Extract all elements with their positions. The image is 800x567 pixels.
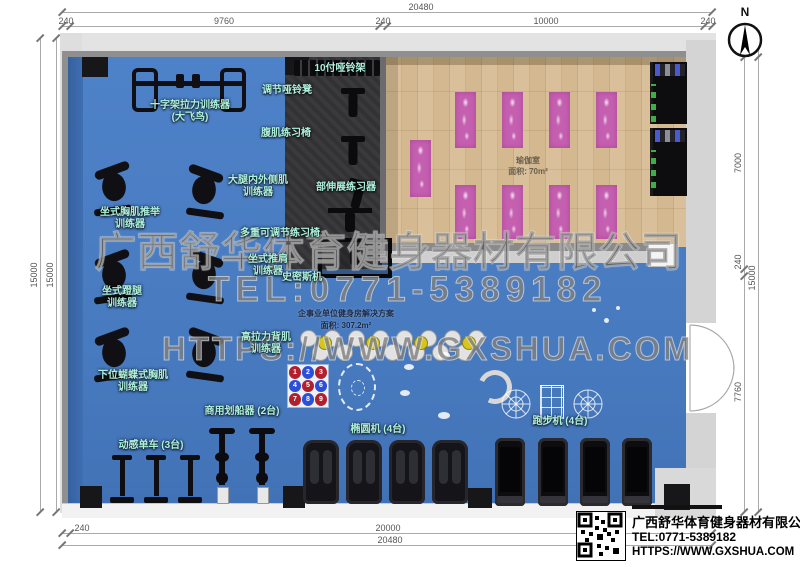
pillar bbox=[82, 57, 108, 77]
treadmill-icon bbox=[622, 438, 652, 506]
grid-cell: 6 bbox=[315, 380, 327, 393]
yoga-mat bbox=[455, 92, 476, 148]
elliptical-icon bbox=[389, 440, 425, 504]
bench-icon bbox=[338, 88, 368, 118]
dim-bottom-overall: 20480 bbox=[377, 535, 402, 545]
grid-cell: 7 bbox=[289, 393, 301, 406]
yoga-mat bbox=[455, 185, 476, 239]
info-card-url: HTTPS://WWW.GXSHUA.COM bbox=[632, 546, 794, 558]
yoga-room-door bbox=[648, 243, 678, 267]
yoga-mat bbox=[410, 140, 431, 197]
spin-bike-icon bbox=[110, 455, 134, 503]
treadmill-icon bbox=[538, 438, 568, 506]
hopscotch-number-grid: 1 2 3 4 5 6 7 8 9 bbox=[287, 364, 329, 408]
yoga-room-area: 面积: 70m² bbox=[508, 166, 548, 177]
label-pec-fly: 下位蝴蝶式胸肌 训练器 bbox=[98, 370, 168, 393]
solution-title: 企事业单位健身房解决方案 bbox=[298, 308, 394, 319]
dim-bottom-seg0: 240 bbox=[74, 523, 89, 533]
label-lat-pulldown: 高拉力背肌 训练器 bbox=[241, 332, 291, 355]
dim-line-right-overall bbox=[758, 50, 759, 512]
dim-top-seg1: 9760 bbox=[214, 16, 234, 26]
yoga-room-left-shadow bbox=[386, 57, 398, 247]
storage-rack bbox=[650, 62, 687, 124]
treadmill-icon bbox=[580, 438, 610, 506]
smith-machine-icon bbox=[318, 238, 392, 278]
compass-north-label: N bbox=[723, 5, 767, 19]
label-adjustable-bench: 多重可调节练习椅 bbox=[240, 228, 320, 240]
agility-ring-icon bbox=[338, 363, 376, 411]
spin-bike-icon bbox=[178, 455, 202, 503]
info-card-rule bbox=[632, 505, 722, 509]
treadmill-icon bbox=[495, 438, 525, 506]
qr-code-icon bbox=[576, 511, 626, 561]
dim-right-overall: 15000 bbox=[747, 265, 757, 290]
label-leg-press: 坐式蹬腿 训练器 bbox=[102, 286, 142, 309]
yoga-mat bbox=[549, 92, 570, 148]
yoga-room-top-shadow bbox=[386, 57, 686, 65]
dim-top-seg3: 10000 bbox=[533, 16, 558, 26]
yoga-mat bbox=[502, 92, 523, 148]
double-door-swing-icon bbox=[686, 323, 744, 413]
yoga-mat bbox=[502, 185, 523, 239]
north-compass: N bbox=[723, 5, 767, 63]
agility-ladder-icon bbox=[540, 385, 564, 419]
dim-left-outer: 15000 bbox=[29, 262, 39, 287]
rowing-machine-icon bbox=[208, 428, 236, 504]
dim-top-seg2: 240 bbox=[375, 16, 390, 26]
pillar bbox=[468, 488, 492, 508]
dim-right-seg0: 7000 bbox=[733, 153, 743, 173]
grid-cell: 1 bbox=[289, 366, 301, 379]
grid-cell: 4 bbox=[289, 380, 301, 393]
dim-line-left-outer bbox=[40, 38, 41, 512]
yoga-room-name: 瑜伽室 bbox=[516, 155, 540, 166]
storage-rack bbox=[650, 128, 687, 196]
strength-machine-icon bbox=[182, 328, 226, 380]
label-dumbbell-bench: 调节哑铃凳 bbox=[262, 85, 312, 97]
dim-line-right-segments bbox=[744, 50, 745, 512]
rope-web-icon bbox=[500, 388, 532, 420]
yoga-mat bbox=[596, 185, 617, 239]
dim-line-top-overall bbox=[62, 12, 712, 13]
floor-plan-canvas: 20480 240 9760 240 10000 240 240 20000 2… bbox=[0, 0, 800, 567]
grid-cell: 8 bbox=[302, 393, 314, 406]
label-treadmills: 跑步机 (4台) bbox=[533, 416, 588, 428]
gym-floor-shadow bbox=[68, 57, 83, 505]
bench-icon bbox=[338, 136, 368, 168]
label-smith-machine: 史密斯机 bbox=[282, 272, 322, 284]
dim-left-inner: 15000 bbox=[45, 262, 55, 287]
label-thigh-trainer: 大腿内外侧肌 训练器 bbox=[228, 175, 288, 198]
grid-cell: 5 bbox=[302, 380, 314, 393]
partition-wall-horizontal bbox=[380, 251, 648, 263]
label-rowers: 商用划船器 (2台) bbox=[205, 406, 280, 418]
dim-top-seg0: 240 bbox=[58, 16, 73, 26]
label-cross-cable: 十字架拉力训练器 (大飞鸟) bbox=[150, 100, 230, 123]
compass-icon bbox=[725, 19, 765, 61]
strength-machine-icon bbox=[182, 165, 226, 217]
elliptical-icon bbox=[432, 440, 468, 504]
rowing-machine-icon bbox=[248, 428, 276, 504]
dim-bottom-seg1: 20000 bbox=[375, 523, 400, 533]
yoga-mat bbox=[596, 92, 617, 148]
yoga-room-floor bbox=[386, 57, 686, 247]
company-info-card: 广西舒华体育健身器材有限公司 TEL:0771-5389182 HTTPS://… bbox=[576, 505, 798, 565]
yoga-mat bbox=[549, 185, 570, 239]
press-bench-icon bbox=[328, 206, 374, 232]
grid-cell: 3 bbox=[315, 366, 327, 379]
label-dumbbell-rack: 10付哑铃架 bbox=[314, 63, 365, 75]
label-ellipticals: 椭圆机 (4台) bbox=[351, 424, 406, 436]
dim-top-seg4: 240 bbox=[700, 16, 715, 26]
label-stretch-trainer: 部伸展练习器 bbox=[316, 182, 376, 194]
strength-machine-icon bbox=[182, 250, 226, 302]
grid-cell: 2 bbox=[302, 366, 314, 379]
solution-area: 面积: 307.2m² bbox=[321, 320, 372, 331]
partition-wall-vertical bbox=[380, 57, 386, 247]
label-spin-bikes: 动感单车 (3台) bbox=[119, 440, 184, 452]
info-card-tel: TEL:0771-5389182 bbox=[632, 530, 736, 544]
partition-wall-shadow bbox=[380, 243, 648, 251]
pillar bbox=[283, 486, 305, 508]
label-ab-chair: 腹肌练习椅 bbox=[261, 128, 311, 140]
dim-top-overall: 20480 bbox=[408, 2, 433, 12]
wall-right bbox=[686, 40, 716, 518]
spin-bike-icon bbox=[144, 455, 168, 503]
dim-right-seg1: 240 bbox=[733, 254, 743, 269]
pillar bbox=[80, 486, 102, 508]
dim-line-left-inner bbox=[56, 38, 57, 512]
elliptical-icon bbox=[303, 440, 339, 504]
grid-cell: 9 bbox=[315, 393, 327, 406]
label-chest-press: 坐式胸肌推举 训练器 bbox=[100, 207, 160, 230]
info-card-company: 广西舒华体育健身器材有限公司 bbox=[632, 512, 800, 531]
elliptical-icon bbox=[346, 440, 382, 504]
